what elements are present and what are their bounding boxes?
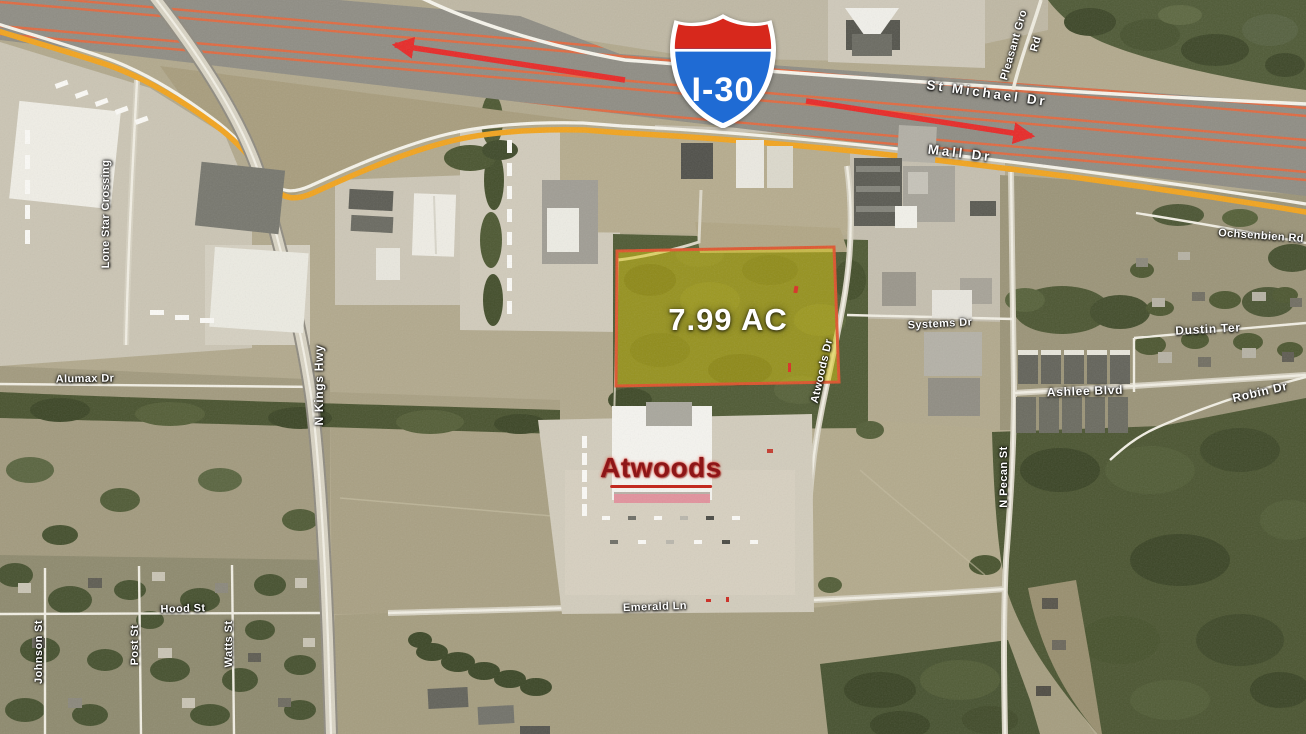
road-label-emerald-ln: Emerald Ln: [623, 600, 687, 614]
atwoods-store-text: Atwoods: [600, 452, 722, 484]
i30-shield: I-30: [668, 14, 778, 128]
road-label-n-kings-hwy: N Kings Hwy: [312, 344, 326, 425]
atwoods-store-underline: [610, 485, 712, 488]
aerial-map: I-30 St Michael Dr Pleasant Gro Rd Mall …: [0, 0, 1306, 734]
road-label-alumax-dr: Alumax Dr: [56, 372, 115, 385]
road-label-ashlee-blvd: Ashlee Blvd: [1047, 383, 1124, 400]
road-label-post-st: Post St: [129, 625, 141, 666]
road-label-watts-st: Watts St: [223, 621, 235, 668]
parcel-area-label: 7.99 AC: [668, 302, 788, 338]
atwoods-store-label: Atwoods: [600, 452, 722, 488]
photo-grain: [0, 0, 1306, 734]
road-label-n-pecan-st: N Pecan St: [998, 446, 1010, 507]
satellite-terrain: [0, 0, 1306, 734]
road-label-hood-st: Hood St: [160, 602, 205, 616]
road-label-johnson-st: Johnson St: [33, 620, 45, 684]
shield-route-number: I-30: [691, 71, 754, 109]
road-label-lone-star-crossing: Lone Star Crossing: [100, 160, 112, 269]
